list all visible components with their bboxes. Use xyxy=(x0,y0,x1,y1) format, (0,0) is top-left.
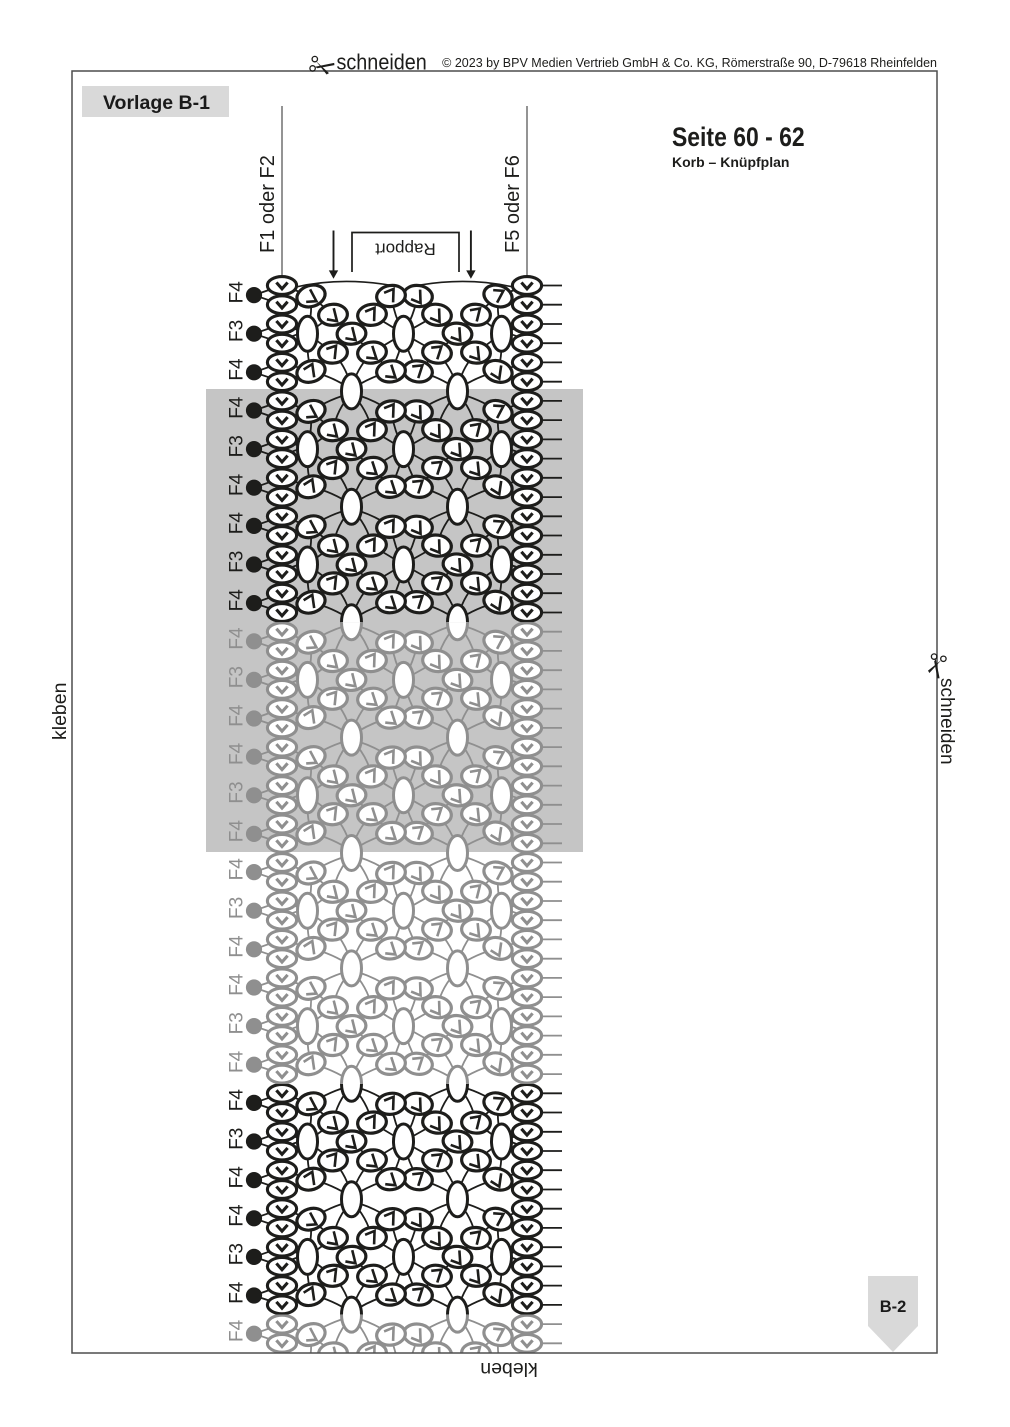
svg-text:Vorlage B-1: Vorlage B-1 xyxy=(103,92,210,114)
svg-text:kleben: kleben xyxy=(49,683,71,740)
svg-text:kleben: kleben xyxy=(480,1358,537,1380)
svg-text:Rapport: Rapport xyxy=(375,240,436,259)
svg-text:B-2: B-2 xyxy=(880,1298,907,1316)
svg-text:Seite 60 - 62: Seite 60 - 62 xyxy=(672,122,805,152)
svg-text:schneiden: schneiden xyxy=(337,50,427,74)
svg-text:Korb – Knüpfplan: Korb – Knüpfplan xyxy=(672,154,789,170)
svg-text:F5 oder F6: F5 oder F6 xyxy=(502,155,524,253)
svg-text:© 2023 by BPV Medien Vertrieb: © 2023 by BPV Medien Vertrieb GmbH & Co.… xyxy=(442,55,937,70)
svg-text:schneiden: schneiden xyxy=(936,678,957,765)
svg-text:F1 oder F2: F1 oder F2 xyxy=(257,155,279,253)
